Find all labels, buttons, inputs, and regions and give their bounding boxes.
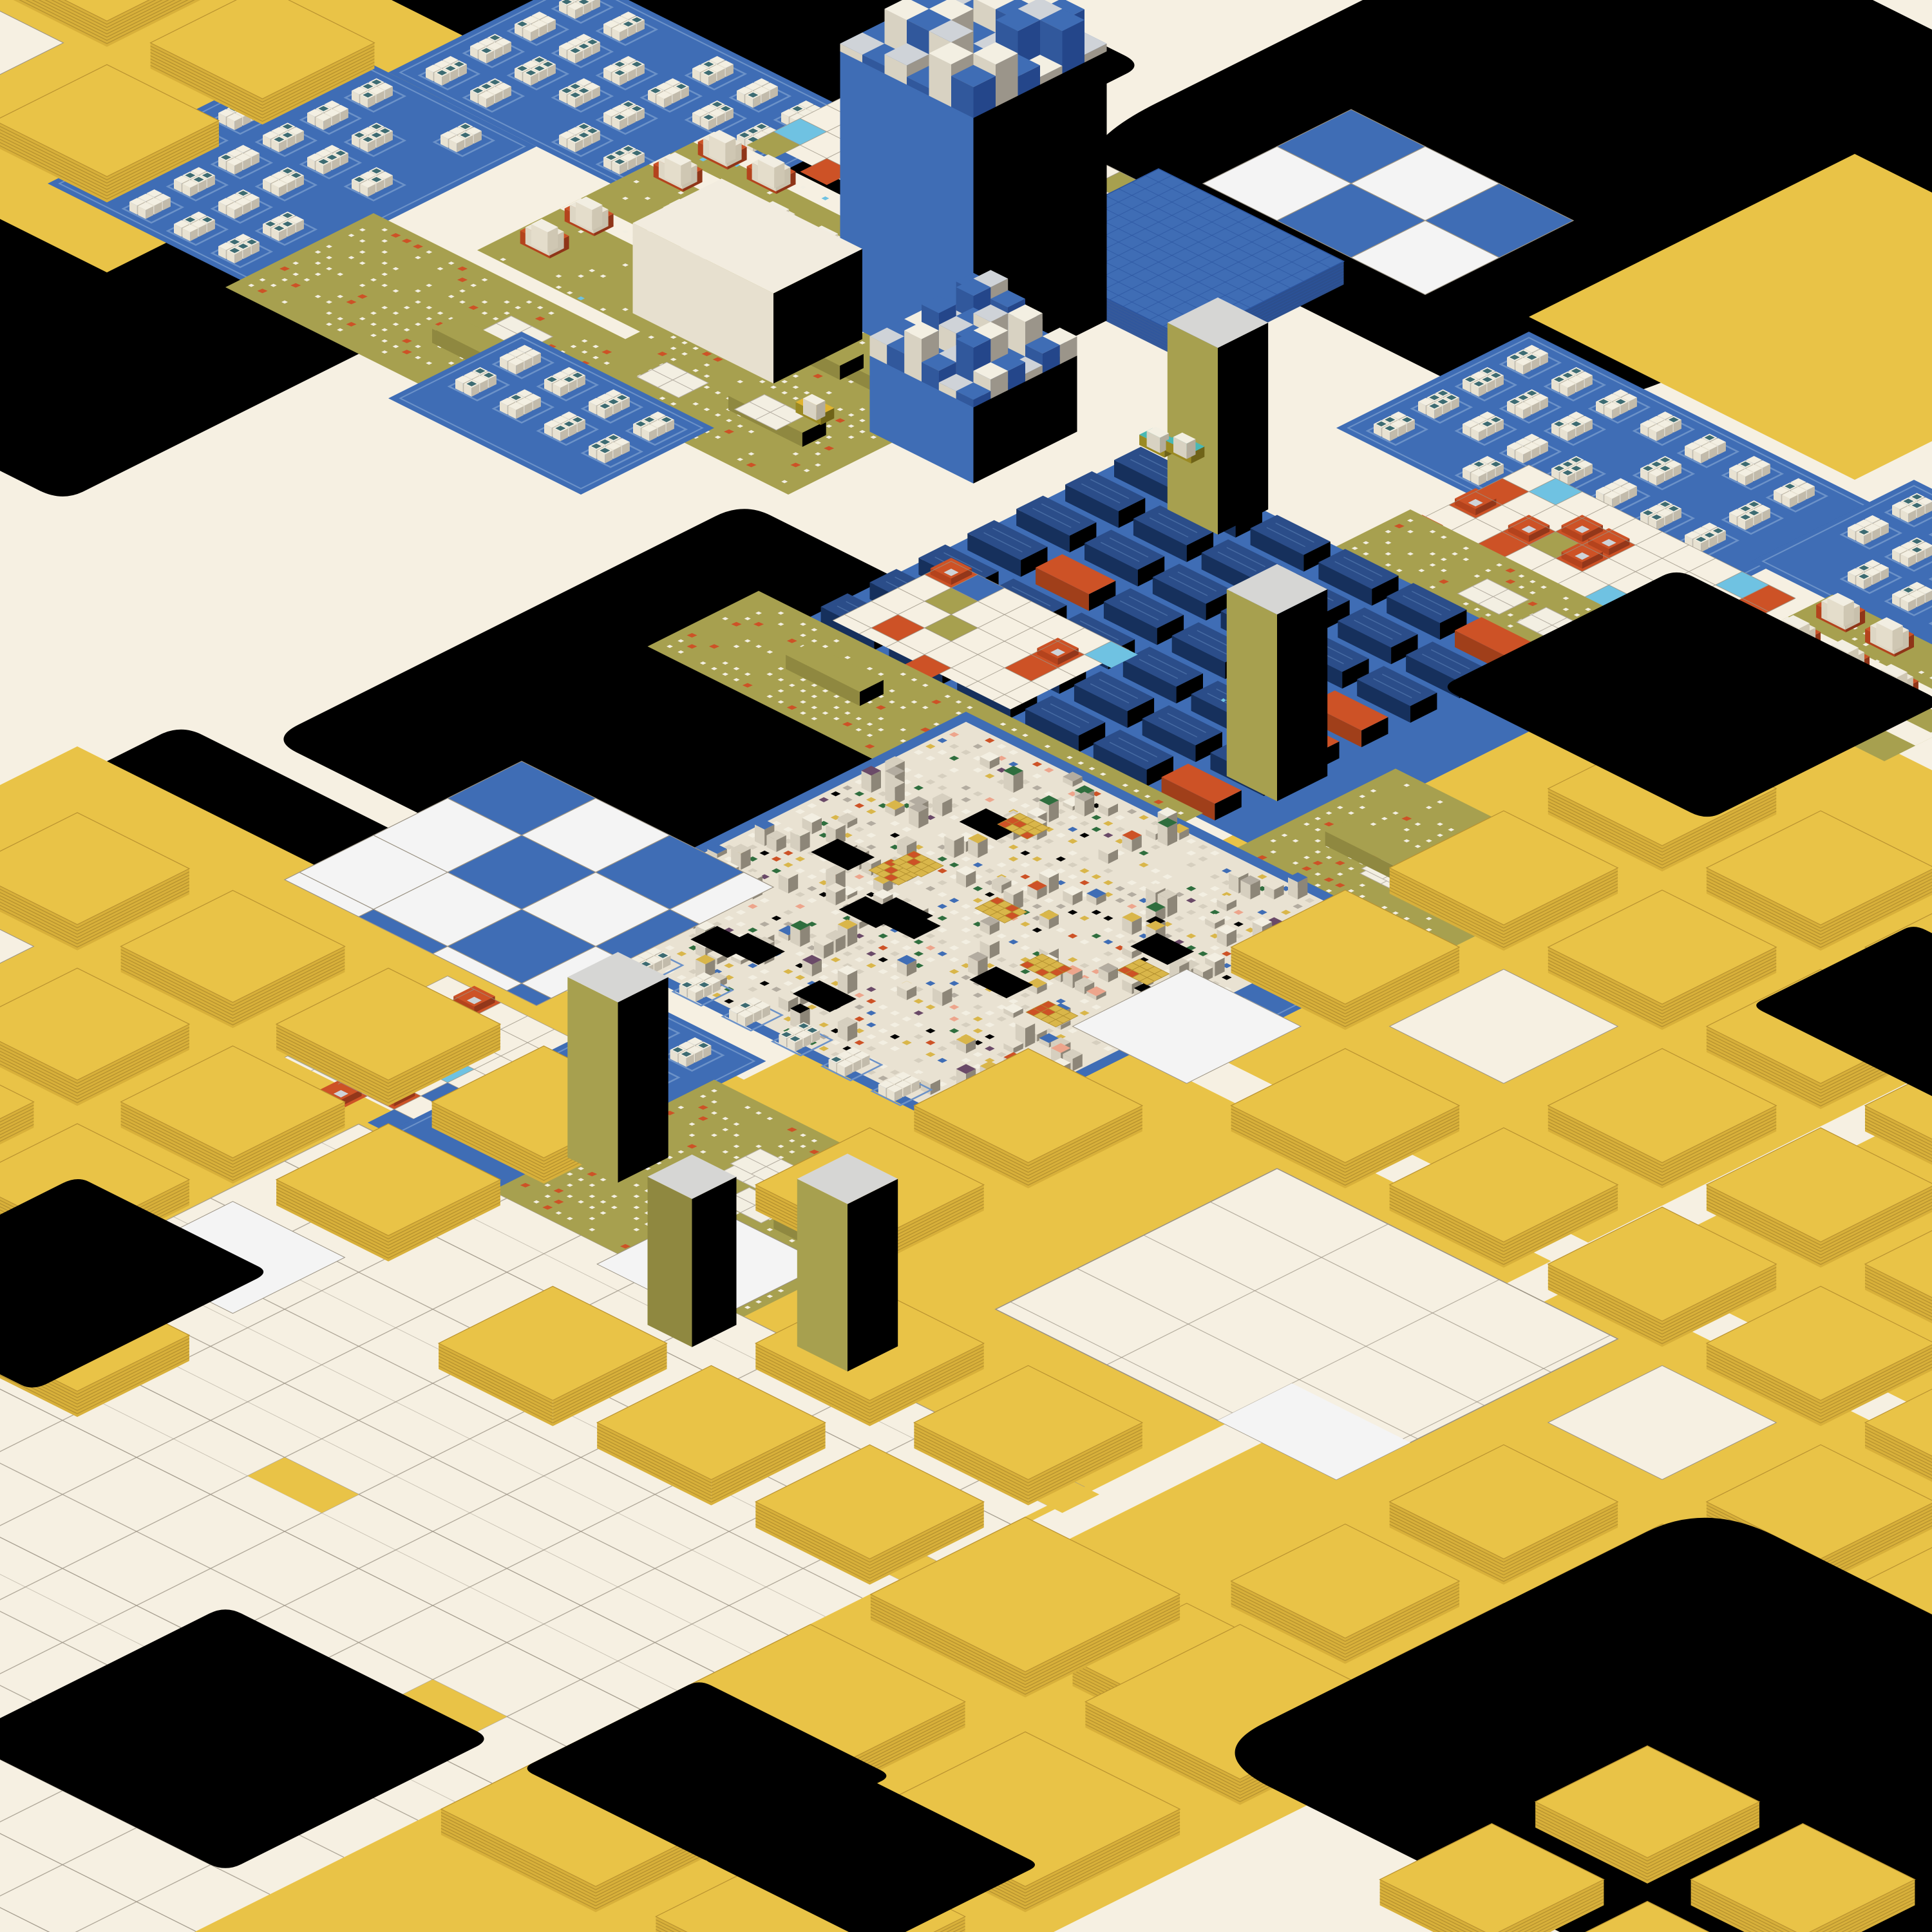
artwork-root <box>0 0 1932 1932</box>
structure-tower-slab <box>1227 564 1327 801</box>
structure-tower-slab <box>797 1153 898 1371</box>
structure-tower-slab <box>648 1155 737 1347</box>
structure-tower-slab <box>1168 298 1268 535</box>
structure-tower-slab <box>567 952 668 1182</box>
scene-canvas <box>0 0 1932 1932</box>
